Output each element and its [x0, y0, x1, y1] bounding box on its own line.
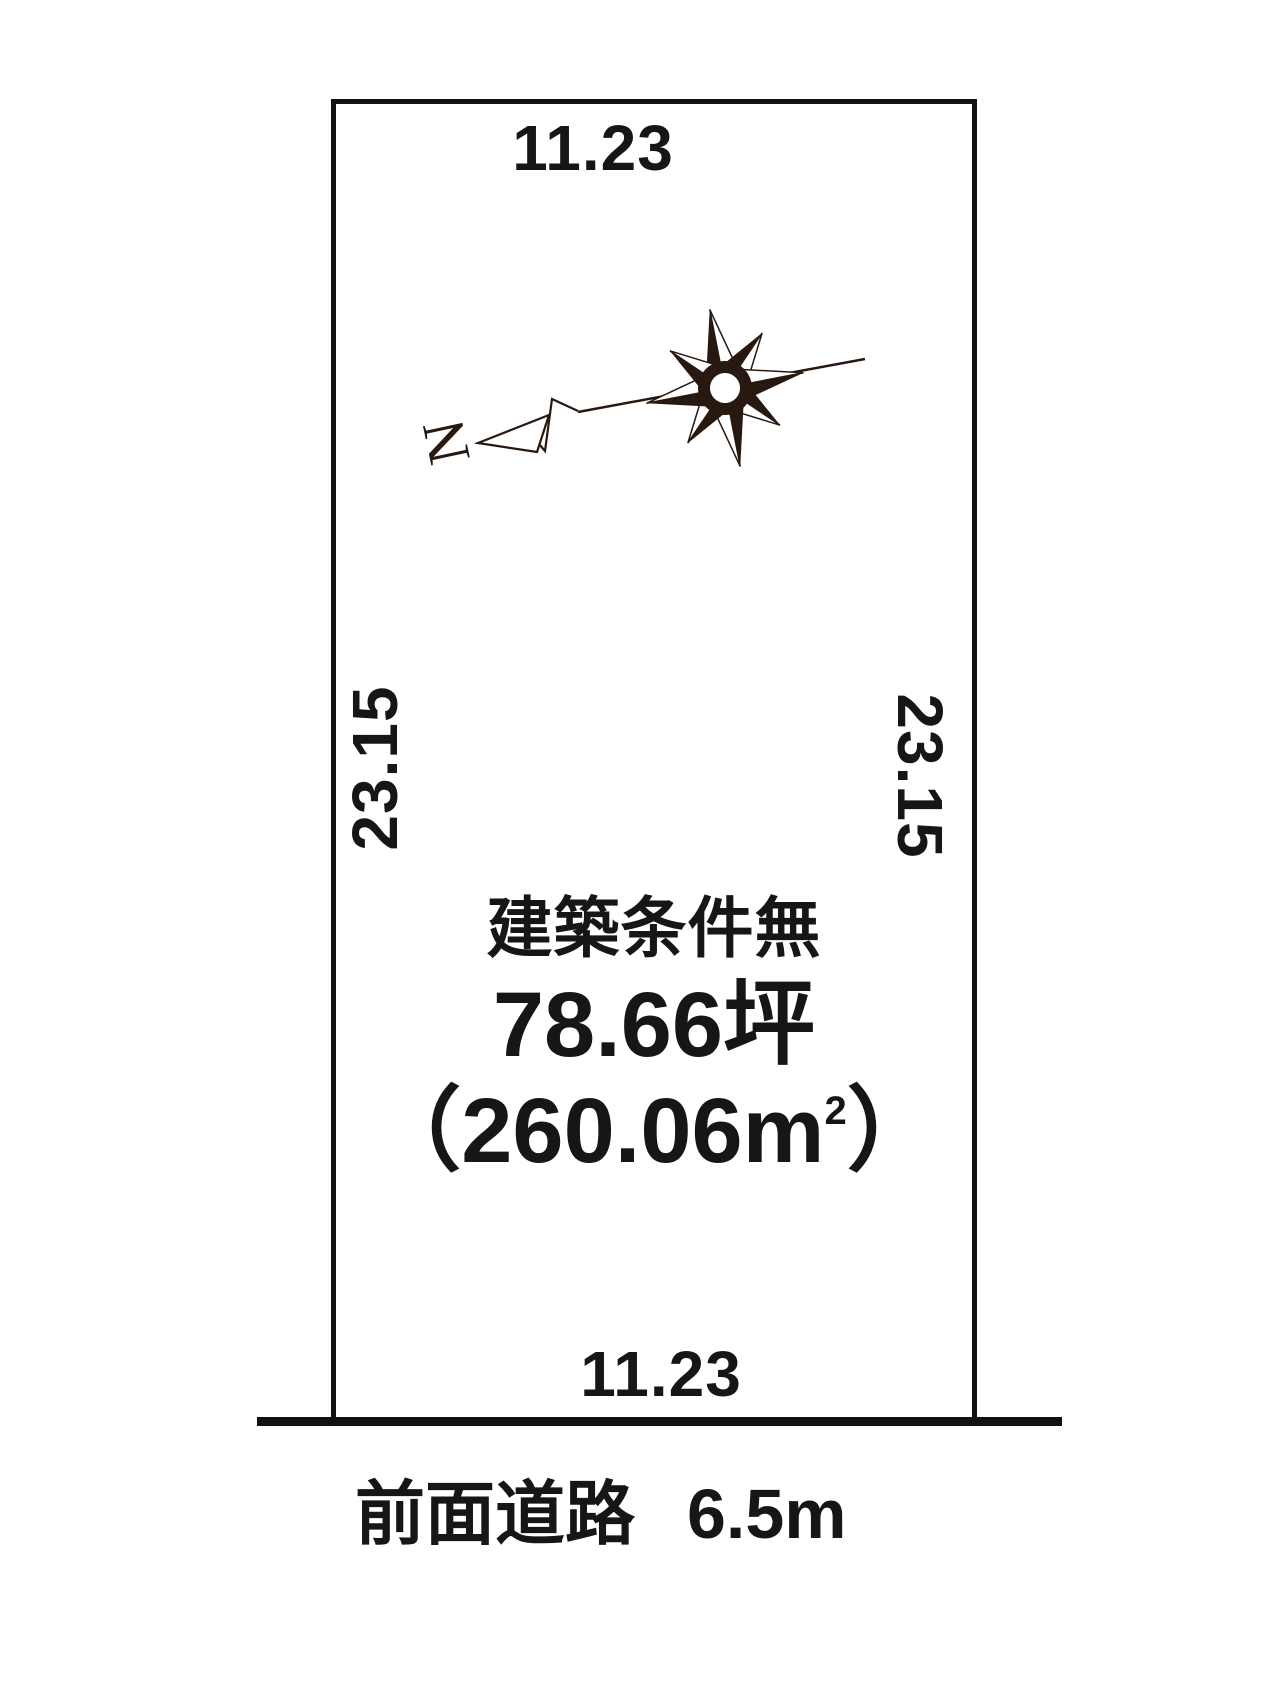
dimension-left: 23.15	[343, 618, 407, 918]
front-road-label: 前面道路6.5m	[355, 1458, 847, 1559]
area-square-meters: （260.06m2）	[331, 1085, 977, 1177]
road-line	[257, 1417, 1062, 1426]
compass-rose-icon: N	[400, 285, 880, 485]
area-tsubo: 78.66坪	[331, 979, 977, 1071]
area-m2-superscript: 2	[824, 1089, 846, 1133]
land-plot-diagram: 11.23 23.15 23.15 11.23	[0, 0, 1280, 1707]
rose-points	[631, 294, 819, 482]
dimension-right: 23.15	[888, 626, 952, 926]
building-condition-label: 建築条件無	[331, 894, 977, 963]
north-label: N	[409, 414, 483, 470]
north-arrowhead	[478, 415, 549, 452]
dimension-bottom: 11.23	[511, 1342, 811, 1406]
road-width: 6.5m	[687, 1475, 847, 1553]
area-m2-prefix: （260.06m	[369, 1080, 824, 1182]
dimension-top: 11.23	[443, 116, 743, 180]
road-name: 前面道路	[355, 1475, 635, 1553]
area-m2-suffix: ）	[847, 1080, 939, 1182]
plot-info: 建築条件無 78.66坪 （260.06m2）	[331, 894, 977, 1177]
